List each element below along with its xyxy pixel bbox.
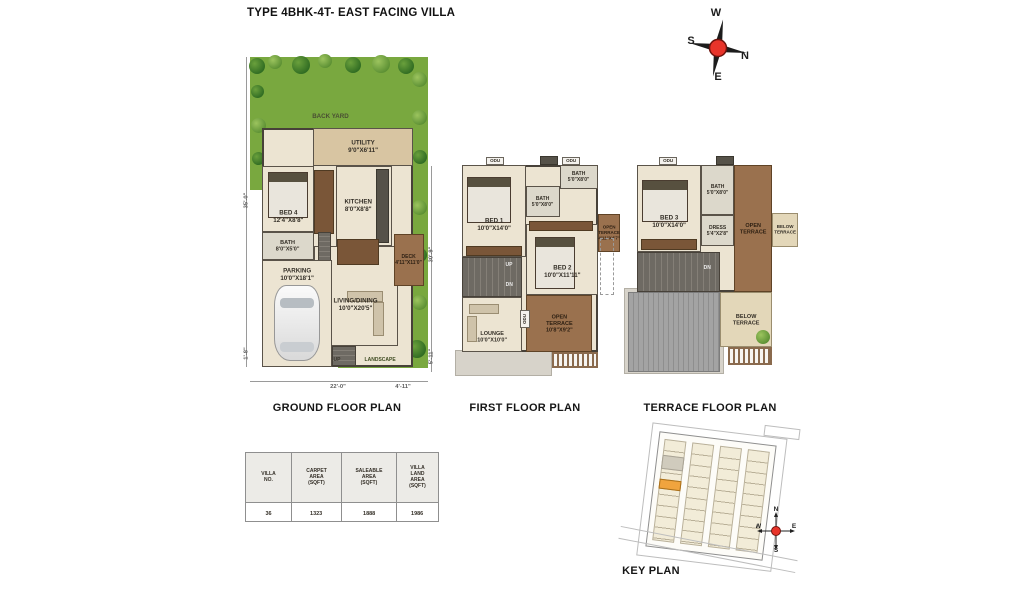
tree-icon [412, 72, 427, 87]
landscape-label: LANDSCAPE [340, 349, 420, 367]
room-bath-ground: BATH 8'0"X5'0" [262, 232, 314, 260]
tree-icon [413, 150, 427, 164]
dim-right-bottom: 5'-11" [428, 344, 434, 370]
room-bed2: BED 2 10'0"X11'11" [526, 224, 598, 295]
projection-outline [600, 238, 614, 295]
vent-box [540, 156, 558, 165]
tree-icon [412, 295, 427, 310]
dn-label: DN [506, 282, 513, 288]
tree-icon [412, 200, 427, 215]
bed-icon [535, 237, 575, 289]
key-plan-caption: KEY PLAN [596, 565, 706, 577]
stairs-terrace [637, 252, 720, 292]
odu-unit: ODU [562, 157, 580, 165]
dimension-line [250, 381, 428, 382]
below-terrace-side: BELOW TERRACE [772, 213, 798, 247]
stairs-first [462, 257, 522, 297]
kp-compass-s-label: S [774, 547, 779, 552]
kp-compass-e-label: E [792, 523, 796, 530]
floor-plan-sheet: TYPE 4BHK-4T- EAST FACING VILLA W S N E … [0, 0, 1024, 591]
table-header-cell: VILLA LAND AREA (SQFT) [396, 453, 438, 503]
dim-right: 30'-9" [428, 242, 434, 268]
compass-n-label: N [741, 50, 749, 62]
odu-unit: ODU [659, 157, 677, 165]
room-bath-top: BATH 5'0"X8'0" [560, 165, 598, 189]
sloped-roof [628, 292, 720, 372]
tree-icon [292, 56, 310, 74]
dim-bottom: 22'-0" [325, 383, 351, 389]
car-windshield [280, 298, 314, 308]
room-parking: PARKING 10'0"X18'1" [262, 260, 332, 367]
kitchen-counter-icon [376, 169, 389, 243]
tree-icon [756, 330, 770, 344]
table-header-row: VILLA NO. CARPET AREA (SQFT) SALEABLE AR… [246, 453, 439, 503]
room-bath-mid: BATH 5'0"X8'0" [526, 186, 560, 217]
page-title: TYPE 4BHK-4T- EAST FACING VILLA [247, 7, 455, 19]
wardrobe-icon [529, 221, 593, 231]
key-plan-clubhouse [661, 455, 685, 472]
compass-w-label: W [711, 7, 722, 19]
room-bed3: BED 3 10'0"X14'0" [637, 165, 701, 252]
tree-icon [412, 110, 427, 125]
dim-bottom-right: 4'-11" [390, 383, 416, 389]
dn-label: DN [704, 265, 711, 271]
room-kitchen: KITCHEN 8'0"X8'8" [336, 166, 392, 246]
open-terrace-large: OPEN TERRACE 10'8"X9'2" [526, 295, 592, 352]
stairs-ground [318, 232, 331, 262]
first-floor-apron [455, 350, 552, 376]
ground-floor-caption: GROUND FLOOR PLAN [262, 402, 412, 414]
room-utility: UTILITY 9'0"X6'11" [313, 128, 413, 166]
room-bath-terrace: BATH 5'0"X8'0" [701, 165, 734, 215]
room-lounge: LOUNGE 10'0"X10'0" [462, 297, 522, 352]
wardrobe-icon [641, 239, 697, 250]
tree-icon [398, 58, 414, 74]
dimension-line [431, 166, 432, 372]
tree-icon [251, 85, 264, 98]
tree-icon [345, 57, 361, 73]
land-area-cell: 1986 [396, 503, 438, 522]
dim-left-bottom: 1'-8" [243, 341, 249, 367]
tree-icon [318, 54, 332, 68]
area-table: VILLA NO. CARPET AREA (SQFT) SALEABLE AR… [245, 452, 439, 522]
tree-icon [372, 55, 390, 73]
sofa-icon [467, 316, 477, 342]
room-bed4: BED 4 12'4"X8'8" [262, 166, 314, 232]
table-row: 36 1323 1888 1986 [246, 503, 439, 522]
carpet-area-cell: 1323 [292, 503, 342, 522]
vent-box [716, 156, 734, 165]
odu-unit: ODU [520, 310, 530, 328]
tree-icon [249, 58, 265, 74]
room-bed1: BED 1 10'0"X14'0" [462, 165, 526, 257]
compass-e-label: E [714, 71, 721, 82]
terrace-floor-caption: TERRACE FLOOR PLAN [635, 402, 785, 414]
table-header-cell: CARPET AREA (SQFT) [292, 453, 342, 503]
table-header-cell: SALEABLE AREA (SQFT) [342, 453, 397, 503]
railing-icon [552, 352, 598, 368]
odu-unit: ODU [486, 157, 504, 165]
sofa-icon [469, 304, 499, 314]
wardrobe-icon [314, 170, 334, 234]
key-plan-compass-icon: N S W E [756, 506, 796, 552]
wardrobe-icon [466, 246, 522, 256]
compass-s-label: S [687, 35, 694, 47]
room-dress: DRESS 5'4"X2'8" [701, 215, 734, 246]
car-rear-window [280, 342, 314, 352]
bed-icon [467, 177, 511, 223]
tree-icon [268, 55, 282, 69]
open-terrace: OPEN TERRACE [734, 165, 772, 292]
kp-compass-n-label: N [774, 506, 779, 513]
first-floor-caption: FIRST FLOOR PLAN [450, 402, 600, 414]
up-label: UP [505, 262, 512, 268]
dim-left: 35'-0" [243, 188, 249, 214]
car-icon [274, 285, 320, 361]
dining-table-icon [337, 239, 379, 265]
compass-icon: W S N E [684, 6, 752, 82]
saleable-area-cell: 1888 [342, 503, 397, 522]
backyard-label: BACK YARD [290, 106, 370, 124]
villa-no-cell: 36 [246, 503, 292, 522]
kp-compass-w-label: W [756, 523, 762, 530]
railing-icon [728, 347, 772, 365]
table-header-cell: VILLA NO. [246, 453, 292, 503]
deck: DECK 4'11"X11'0" [394, 234, 424, 286]
